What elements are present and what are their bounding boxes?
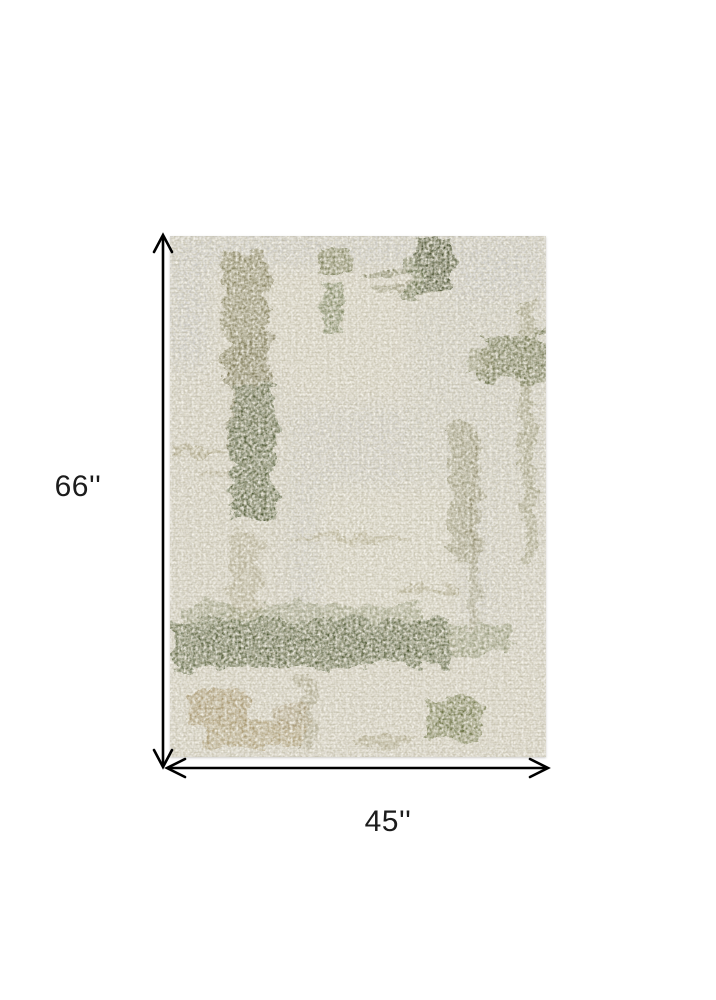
- height-dimension-label: 66'': [38, 471, 118, 503]
- product-dimension-view: 66'' 45'': [0, 0, 716, 1000]
- rug-product-image: [170, 236, 546, 757]
- width-dimension-label: 45'': [348, 806, 428, 838]
- width-dimension-arrow: [167, 759, 548, 777]
- rug-artwork: [170, 236, 546, 757]
